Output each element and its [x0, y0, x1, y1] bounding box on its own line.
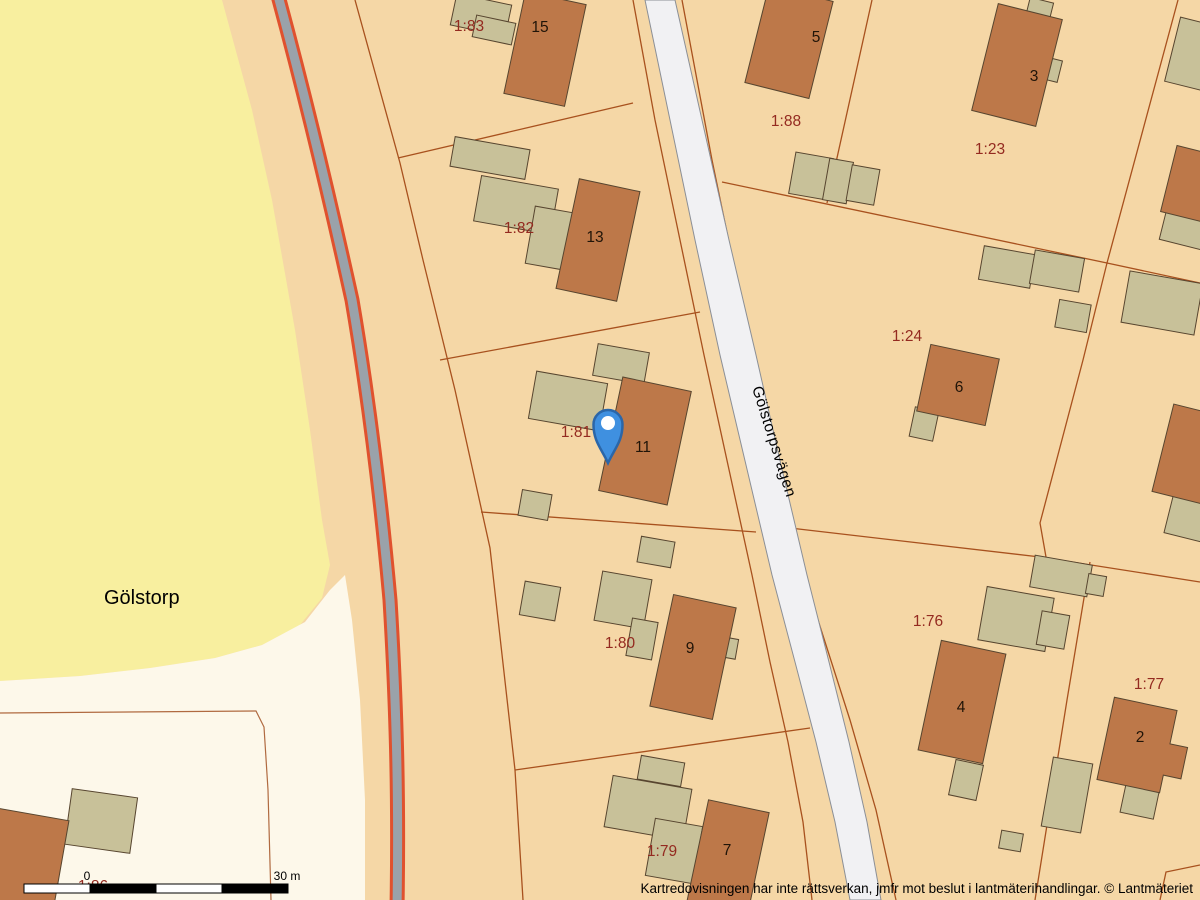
house-number: 2: [1136, 729, 1145, 746]
parcel-label: 1:23: [975, 141, 1005, 158]
shed-building: [64, 789, 137, 854]
house-number: 15: [531, 19, 548, 36]
house-number: 4: [957, 699, 966, 716]
scale-start-label: 0: [84, 869, 91, 883]
shed-building: [999, 830, 1024, 852]
attribution-text: Kartredovisningen har inte rättsverkan, …: [641, 881, 1194, 896]
cadastral-map[interactable]: 1:83 1:82 1:81 1:80 1:79 1:88 1:23 1:24 …: [0, 0, 1200, 900]
shed-building: [846, 165, 880, 205]
scale-bar-segment: [222, 884, 288, 893]
house-number: 7: [723, 842, 732, 859]
parcel-label: 1:76: [913, 613, 943, 630]
parcel-label: 1:81: [561, 424, 591, 441]
shed-building: [1055, 299, 1091, 332]
parcel-label: 1:83: [454, 18, 484, 35]
house-number: 5: [812, 29, 821, 46]
house-number: 9: [686, 640, 695, 657]
parcel-label: 1:24: [892, 328, 923, 345]
parcel-label: 1:79: [647, 843, 677, 860]
place-name-label: Gölstorp: [104, 587, 180, 609]
shed-building: [519, 581, 560, 621]
map-pin-hole: [601, 416, 615, 430]
scale-bar-segment: [24, 884, 90, 893]
parcel-label: 1:82: [504, 220, 534, 237]
shed-building: [1036, 611, 1069, 649]
parcel-label: 1:80: [605, 635, 636, 652]
scale-bar-segment: [90, 884, 156, 893]
shed-building: [1085, 574, 1106, 597]
house-number: 13: [586, 229, 603, 246]
shed-building: [637, 536, 675, 568]
scale-bar-segment: [156, 884, 222, 893]
parcel-label: 1:77: [1134, 676, 1164, 693]
house-number: 3: [1030, 68, 1039, 85]
shed-building: [518, 490, 552, 521]
parcel-label: 1:88: [771, 113, 801, 130]
map-canvas: 1:83 1:82 1:81 1:80 1:79 1:88 1:23 1:24 …: [0, 0, 1200, 900]
house-number: 6: [955, 379, 964, 396]
scale-end-label: 30 m: [274, 869, 301, 883]
house-number: 11: [635, 439, 651, 456]
